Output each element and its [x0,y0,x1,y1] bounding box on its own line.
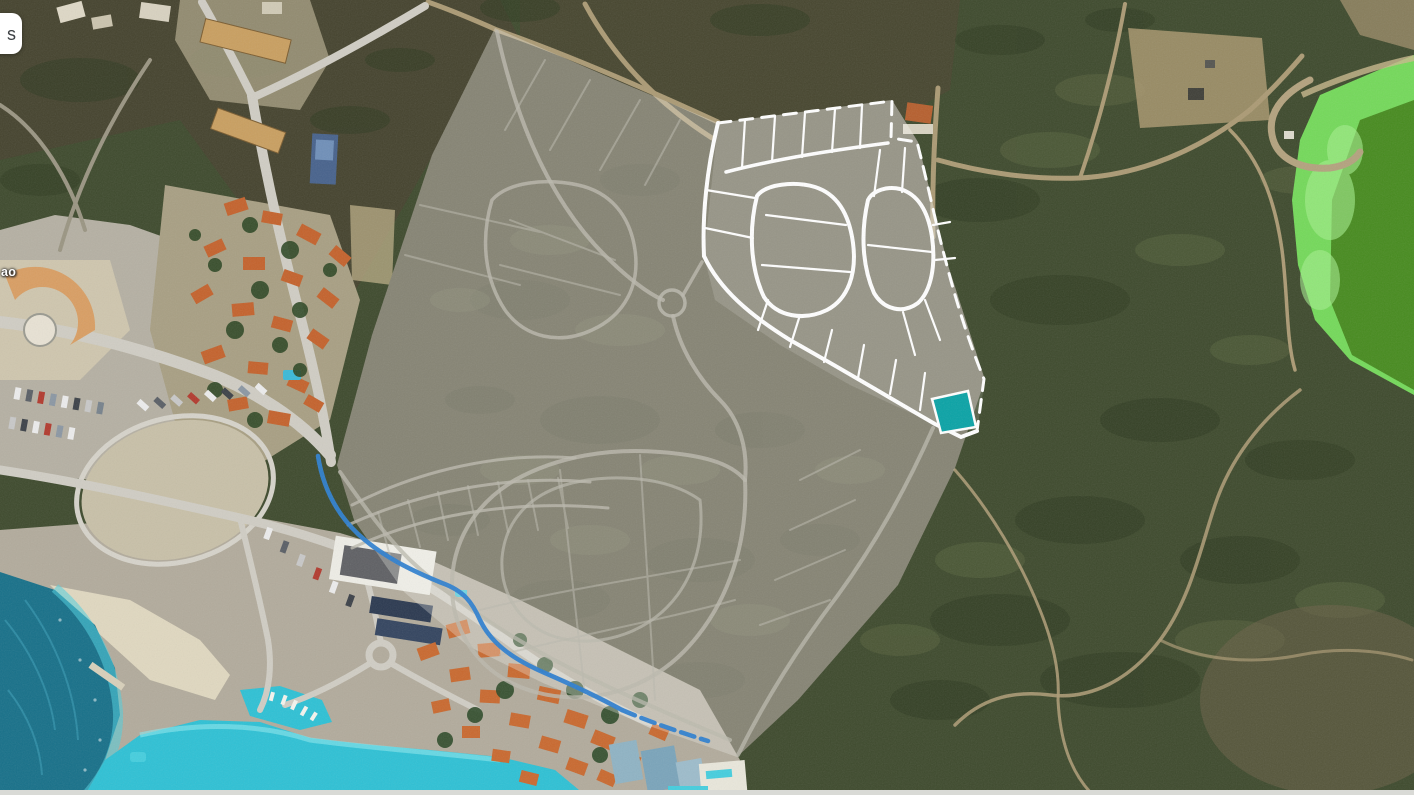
map-viewport[interactable]: s ao [0,0,1414,795]
map-control-button-label: s [7,25,16,43]
grain-texture [0,0,1414,795]
map-bottom-edge [0,790,1414,795]
place-label: ao [1,265,16,279]
satellite-map[interactable] [0,0,1414,795]
map-control-button-partial[interactable]: s [0,13,22,54]
